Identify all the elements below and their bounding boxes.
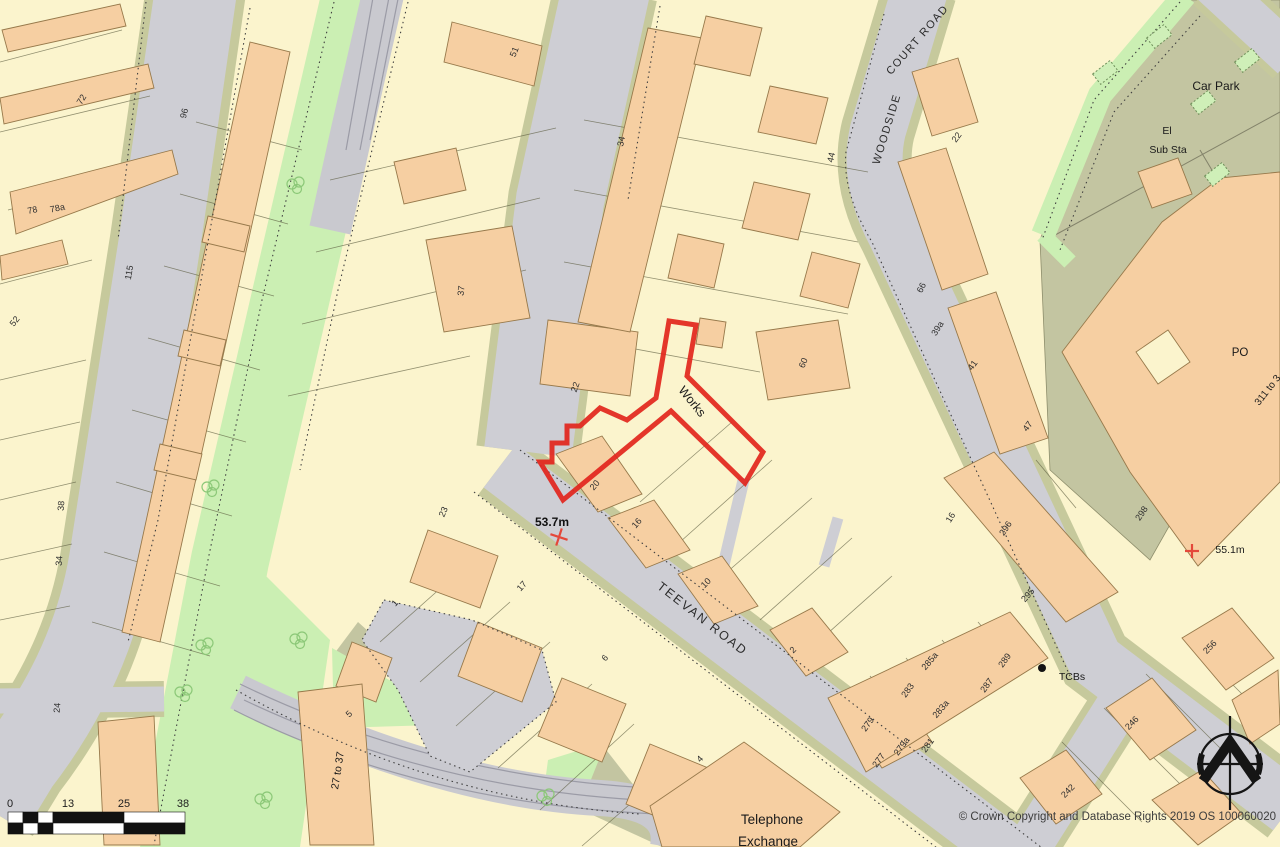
label-no-78: 78 [26, 204, 38, 216]
scale-tick-13: 13 [62, 798, 74, 810]
label-telephone-exchange-2: Exchange [738, 834, 798, 847]
label-no-44: 44 [825, 151, 837, 163]
label-tcbs: TCBs [1059, 671, 1085, 683]
os-plan-map: 0 13 25 38 © Crown Copyright and Databas… [0, 0, 1280, 847]
label-bench-55-1m: 55.1m [1215, 544, 1244, 556]
label-el-sub-sta-2: Sub Sta [1149, 144, 1187, 156]
attribution: © Crown Copyright and Database Rights 20… [959, 811, 1276, 823]
label-no-34-left: 34 [54, 555, 65, 566]
label-bench-53-7m: 53.7m [535, 515, 569, 529]
scale-tick-25: 25 [118, 798, 130, 810]
label-po: PO [1232, 347, 1249, 359]
map-canvas: 0 13 25 38 © Crown Copyright and Databas… [0, 0, 1280, 847]
label-telephone-exchange-1: Telephone [741, 812, 803, 827]
label-no-24: 24 [52, 702, 63, 713]
scale-tick-0: 0 [7, 798, 13, 810]
label-el-sub-sta-1: El [1162, 125, 1171, 137]
label-no-38: 38 [56, 500, 67, 511]
label-car-park: Car Park [1192, 79, 1240, 93]
scale-tick-38: 38 [177, 798, 189, 810]
label-no-37: 37 [456, 285, 467, 296]
tcbs-marker [1038, 664, 1046, 672]
label-no-34-center: 34 [615, 135, 627, 147]
